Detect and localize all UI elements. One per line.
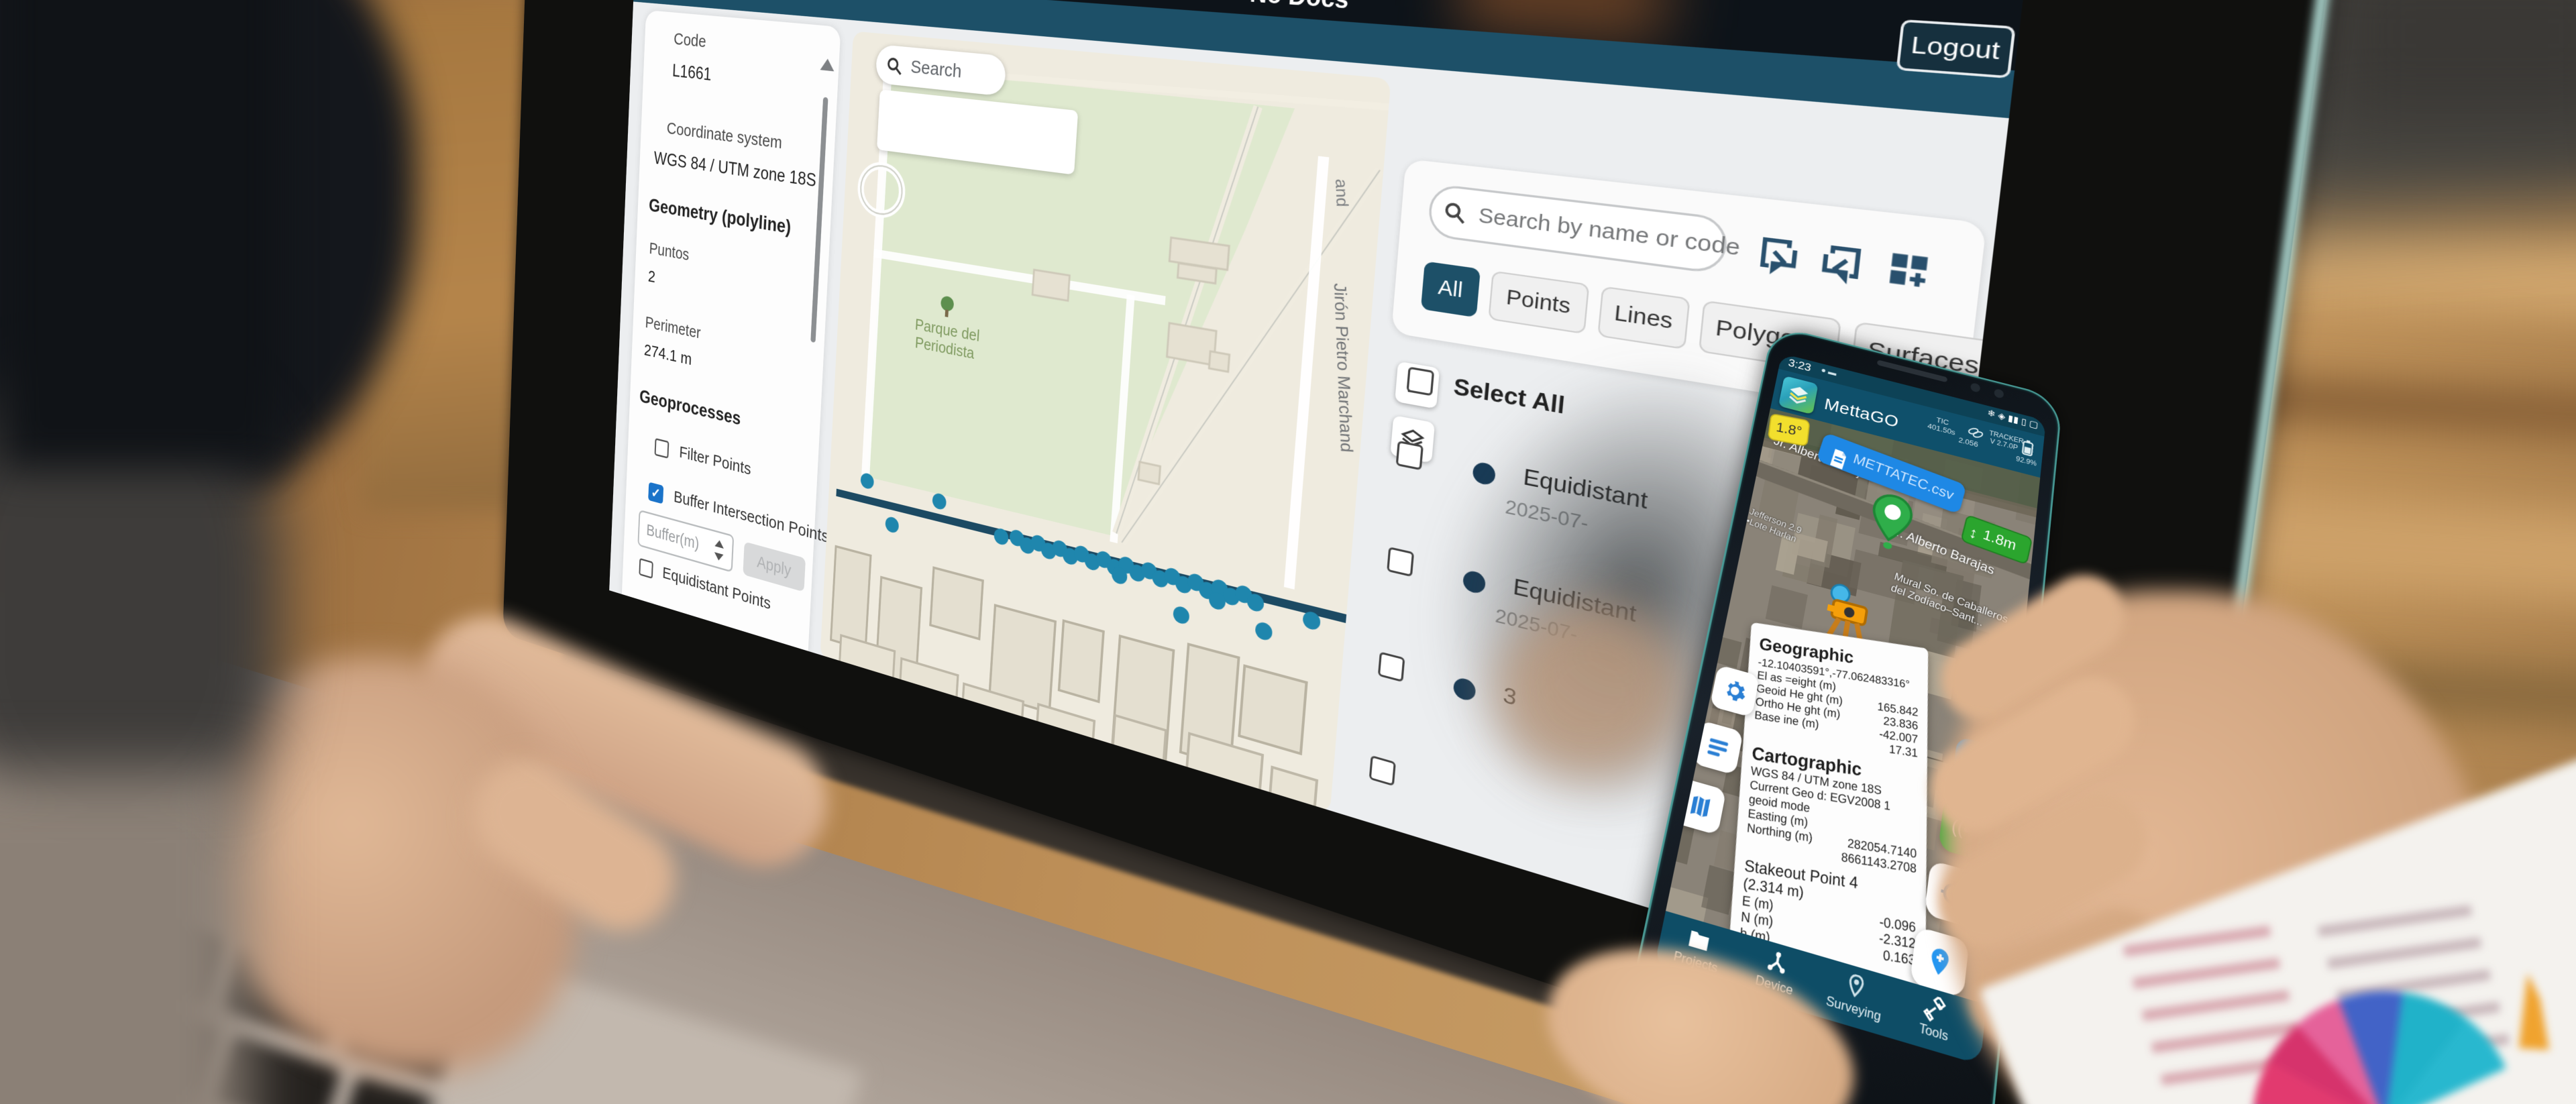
svg-text:and: and xyxy=(1332,179,1351,207)
